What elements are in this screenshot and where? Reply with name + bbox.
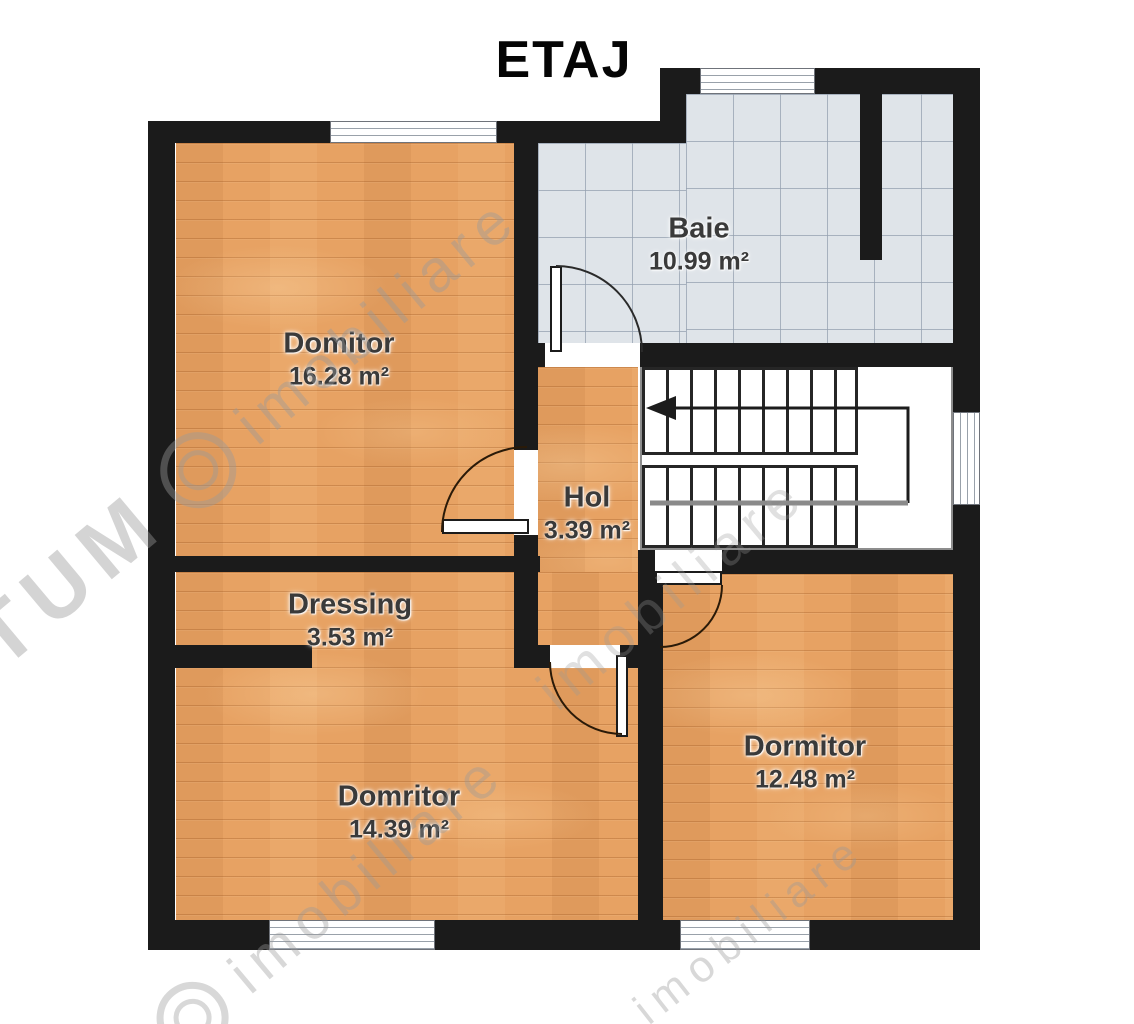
room-name: Domitor [283,325,394,361]
floor-plan: ETAJ Domitor [0,0,1134,1024]
room-label-dormitor: Dormitor 12.48 m² [744,728,866,796]
room-name: Dressing [288,586,412,622]
door-swing-arc-bedroom-bottomleft [550,662,622,734]
room-label-domritor: Domritor 14.39 m² [338,778,460,846]
room-name: Domritor [338,778,460,814]
door-swing-arc-bedroom-right [660,585,722,647]
room-area: 16.28 m² [283,362,394,393]
room-label-baie: Baie 10.99 m² [649,210,749,278]
door-swing-arc-bedroom-topleft [442,447,527,532]
room-label-domitor: Domitor 16.28 m² [283,325,394,393]
floor-title: ETAJ [495,30,632,90]
door-swing-arc-bathroom [556,266,642,352]
room-label-dressing: Dressing 3.53 m² [288,586,412,654]
room-label-hol: Hol 3.39 m² [544,479,630,547]
room-name: Dormitor [744,728,866,764]
room-name: Baie [649,210,749,246]
room-area: 3.39 m² [544,516,630,547]
room-name: Hol [544,479,630,515]
room-area: 10.99 m² [649,247,749,278]
room-area: 3.53 m² [288,623,412,654]
stairs-walk-line-up [660,408,908,503]
room-area: 14.39 m² [338,815,460,846]
room-area: 12.48 m² [744,765,866,796]
stairs-direction-arrow-left-icon [646,396,676,420]
